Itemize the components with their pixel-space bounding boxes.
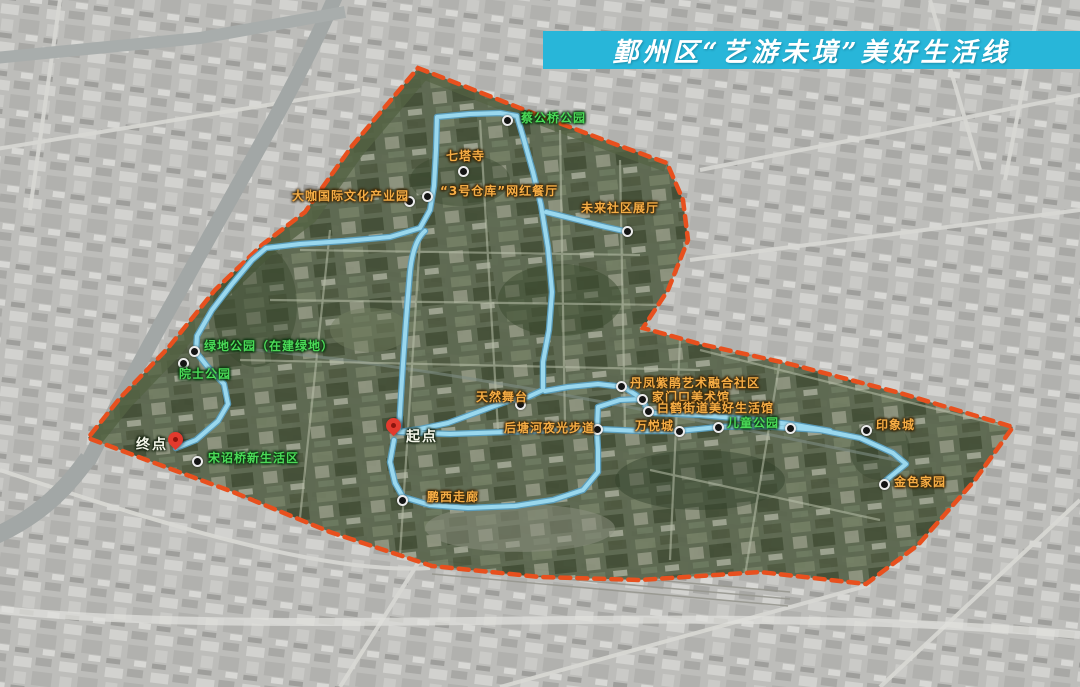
poi-label: 儿童公园: [727, 417, 779, 430]
start-pin: [383, 415, 404, 436]
poi-label: “3号仓库”网红餐厅: [440, 185, 558, 198]
poi-dot: [713, 422, 724, 433]
end-pin: [165, 429, 186, 450]
poi-label: 蔡公桥公园: [521, 112, 586, 125]
poi-label: 天然舞台: [476, 391, 528, 404]
poi-label: 绿地公园（在建绿地）: [204, 340, 334, 353]
poi-dot: [785, 423, 796, 434]
poi-label: 后塘河夜光步道: [504, 422, 595, 435]
page-title: 鄞州区“艺游未境”美好生活线: [613, 32, 1011, 69]
poi-dot: [189, 346, 200, 357]
poi-dot: [861, 425, 872, 436]
poi-dot: [422, 191, 433, 202]
end-label: 终点: [136, 434, 168, 454]
map-screenshot: 蔡公桥公园七塔寺大咖国际文化产业园“3号仓库”网红餐厅未来社区展厅绿地公园（在建…: [0, 0, 1080, 687]
poi-dot: [616, 381, 627, 392]
poi-dot: [674, 426, 685, 437]
poi-dot: [643, 406, 654, 417]
title-banner: 鄞州区“艺游未境”美好生活线: [543, 31, 1080, 69]
poi-dot: [192, 456, 203, 467]
poi-dot: [622, 226, 633, 237]
poi-label: 白鹤街道美好生活馆: [657, 402, 774, 415]
start-label: 起点: [406, 426, 438, 446]
poi-label: 万悦城: [635, 420, 674, 433]
poi-dot: [397, 495, 408, 506]
poi-label: 七塔寺: [446, 150, 485, 163]
poi-label: 大咖国际文化产业园: [292, 190, 409, 203]
poi-layer: 蔡公桥公园七塔寺大咖国际文化产业园“3号仓库”网红餐厅未来社区展厅绿地公园（在建…: [0, 0, 1080, 687]
poi-dot: [879, 479, 890, 490]
poi-dot: [458, 166, 469, 177]
poi-label: 鹏西走廊: [427, 491, 479, 504]
poi-label: 院士公园: [179, 368, 231, 381]
poi-label: 丹凤紫鹃艺术融合社区: [630, 377, 760, 390]
poi-dot: [502, 115, 513, 126]
poi-label: 宋诏桥新生活区: [208, 452, 299, 465]
poi-label: 印象城: [876, 419, 915, 432]
poi-dot: [637, 394, 648, 405]
poi-label: 金色家园: [894, 476, 946, 489]
poi-label: 未来社区展厅: [581, 202, 659, 215]
